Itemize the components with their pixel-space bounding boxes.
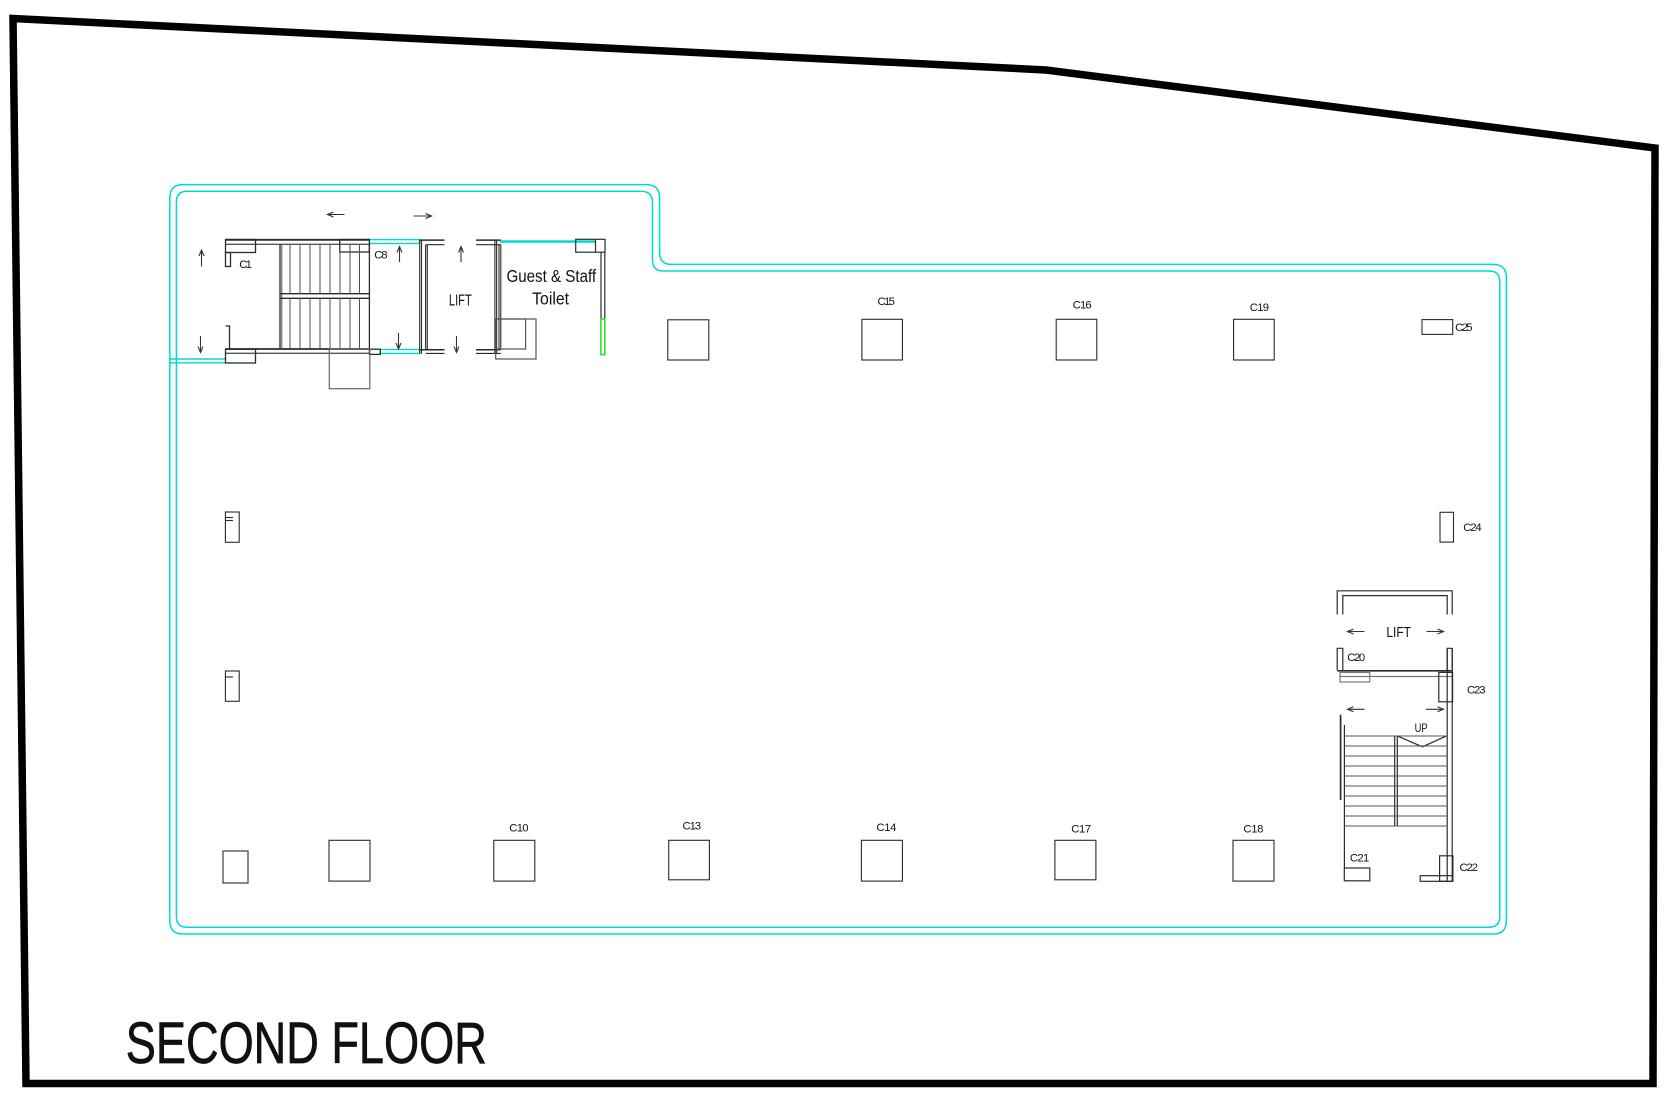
svg-text:SECOND FLOOR: SECOND FLOOR	[126, 1011, 487, 1076]
svg-text:C21: C21	[1350, 852, 1369, 864]
svg-text:C22: C22	[1460, 862, 1478, 874]
svg-text:Guest & Staff: Guest & Staff	[507, 266, 597, 286]
svg-text:LIFT: LIFT	[1386, 625, 1411, 641]
svg-text:LIFT: LIFT	[449, 292, 472, 309]
svg-text:C25: C25	[1455, 322, 1473, 334]
svg-text:Toilet: Toilet	[532, 289, 569, 309]
svg-text:C10: C10	[509, 823, 528, 835]
svg-text:C14: C14	[876, 822, 896, 834]
svg-text:C20: C20	[1347, 652, 1365, 664]
svg-text:C24: C24	[1463, 522, 1482, 534]
svg-text:UP: UP	[1415, 721, 1428, 735]
svg-text:C8: C8	[374, 250, 387, 262]
svg-text:C18: C18	[1243, 823, 1263, 835]
svg-text:C1: C1	[239, 259, 252, 271]
svg-text:C15: C15	[878, 296, 895, 308]
svg-text:C16: C16	[1073, 300, 1092, 312]
svg-text:C19: C19	[1250, 302, 1269, 314]
svg-text:C17: C17	[1071, 823, 1091, 835]
svg-text:C23: C23	[1467, 685, 1486, 697]
svg-text:C13: C13	[683, 821, 702, 833]
